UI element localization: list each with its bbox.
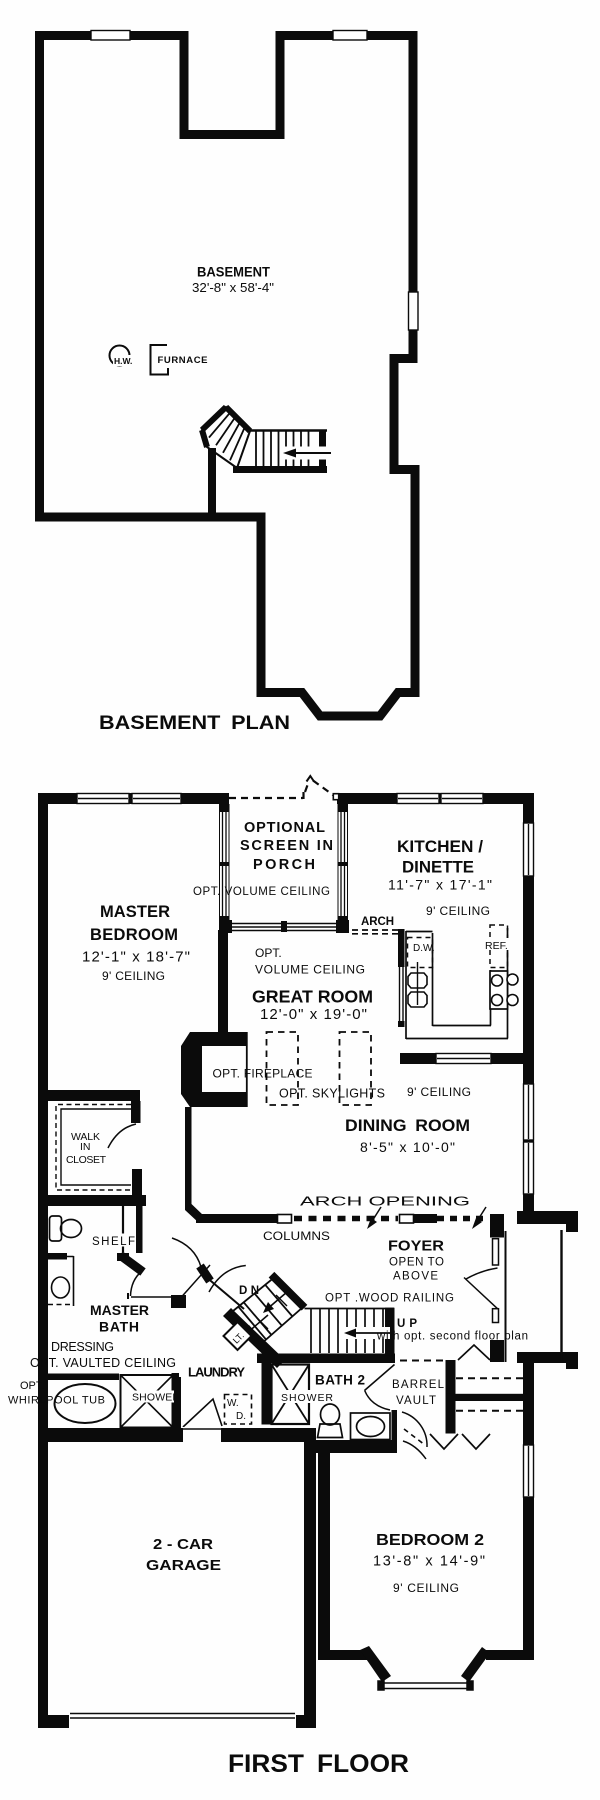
svg-text:GREAT ROOM: GREAT ROOM [252, 987, 373, 1007]
svg-text:9' CEILING: 9' CEILING [393, 1581, 459, 1595]
svg-text:32'-8" x 58'-4": 32'-8" x 58'-4" [192, 280, 274, 295]
svg-text:D.: D. [236, 1411, 246, 1422]
svg-text:2 - CAR: 2 - CAR [153, 1536, 213, 1553]
svg-text:GARAGE: GARAGE [146, 1557, 221, 1574]
svg-text:BARREL: BARREL [392, 1379, 445, 1391]
svg-text:13'-8" x 14'-9": 13'-8" x 14'-9" [373, 1554, 485, 1570]
svg-text:ABOVE: ABOVE [393, 1271, 438, 1283]
svg-text:OPT. SKYLIGHTS: OPT. SKYLIGHTS [279, 1087, 385, 1101]
svg-text:OPT.: OPT. [20, 1380, 44, 1392]
svg-text:FURNACE: FURNACE [158, 355, 208, 366]
svg-text:9' CEILING: 9' CEILING [407, 1085, 471, 1099]
svg-text:ARCH: ARCH [361, 916, 394, 928]
svg-text:KITCHEN /: KITCHEN / [397, 838, 483, 856]
svg-text:IN: IN [80, 1141, 91, 1153]
svg-text:OPT. VAULTED CEILING: OPT. VAULTED CEILING [30, 1356, 176, 1370]
svg-text:LAUNDRY: LAUNDRY [188, 1365, 245, 1380]
svg-text:D.W.: D.W. [413, 943, 435, 954]
svg-text:SHOWER: SHOWER [281, 1392, 333, 1404]
svg-text:BASEMENT: BASEMENT [197, 264, 270, 280]
svg-text:MASTER: MASTER [90, 1302, 149, 1318]
svg-text:MASTER: MASTER [100, 903, 170, 921]
svg-text:COLUMNS: COLUMNS [263, 1229, 330, 1243]
svg-text:OPT.: OPT. [255, 946, 282, 960]
svg-text:12'-0" x 19'-0": 12'-0" x 19'-0" [260, 1006, 367, 1023]
svg-text:9' CEILING: 9' CEILING [426, 904, 490, 918]
svg-text:SCREEN IN: SCREEN IN [240, 838, 333, 854]
svg-text:OPT. VOLUME CEILING: OPT. VOLUME CEILING [193, 886, 330, 898]
svg-text:OPEN TO: OPEN TO [389, 1257, 444, 1269]
svg-text:9' CEILING: 9' CEILING [102, 969, 165, 983]
svg-text:DRESSING: DRESSING [51, 1340, 114, 1354]
svg-text:VAULT: VAULT [396, 1395, 436, 1407]
svg-text:SHELF: SHELF [92, 1236, 135, 1248]
svg-text:ARCH OPENING: ARCH OPENING [300, 1194, 470, 1209]
svg-text:11'-7" x 17'-1": 11'-7" x 17'-1" [388, 877, 492, 893]
svg-text:BASEMENT PLAN: BASEMENT PLAN [99, 713, 290, 734]
svg-text:CLOSET: CLOSET [66, 1154, 107, 1166]
svg-text:PORCH: PORCH [253, 857, 315, 873]
svg-text:VOLUME CEILING: VOLUME CEILING [255, 963, 365, 977]
svg-text:DINETTE: DINETTE [402, 859, 474, 877]
svg-text:12'-1" x 18'-7": 12'-1" x 18'-7" [82, 949, 190, 966]
svg-text:OPT .WOOD RAILING: OPT .WOOD RAILING [325, 1293, 454, 1305]
svg-text:BEDROOM 2: BEDROOM 2 [376, 1532, 484, 1549]
svg-text:BATH: BATH [99, 1319, 139, 1335]
svg-text:DINING ROOM: DINING ROOM [345, 1116, 470, 1135]
svg-text:FOYER: FOYER [388, 1238, 444, 1255]
svg-text:BEDROOM: BEDROOM [90, 926, 178, 944]
svg-text:SHOWER: SHOWER [132, 1392, 180, 1404]
svg-text:with opt. second floor plan: with opt. second floor plan [376, 1331, 528, 1343]
svg-text:OPTIONAL: OPTIONAL [244, 820, 325, 836]
svg-text:BATH 2: BATH 2 [315, 1373, 365, 1388]
svg-text:H.W.: H.W. [114, 356, 132, 366]
svg-text:W.: W. [227, 1398, 239, 1409]
svg-text:8'-5" x 10'-0": 8'-5" x 10'-0" [360, 1139, 455, 1155]
svg-text:FIRST FLOOR: FIRST FLOOR [228, 1750, 409, 1778]
svg-text:REF.: REF. [485, 940, 508, 952]
